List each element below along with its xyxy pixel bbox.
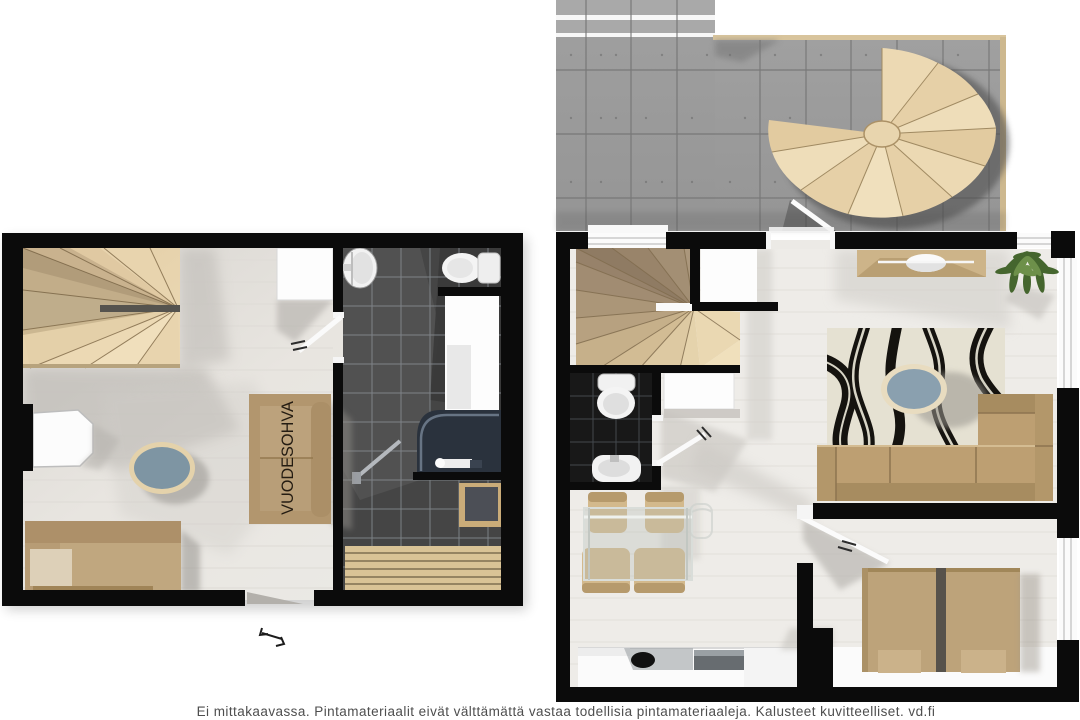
svg-text:Ei mittakaavassa. Pintamateria: Ei mittakaavassa. Pintamateriaalit eivät… — [197, 704, 936, 719]
svg-text:VUODESOHVA: VUODESOHVA — [279, 401, 297, 515]
